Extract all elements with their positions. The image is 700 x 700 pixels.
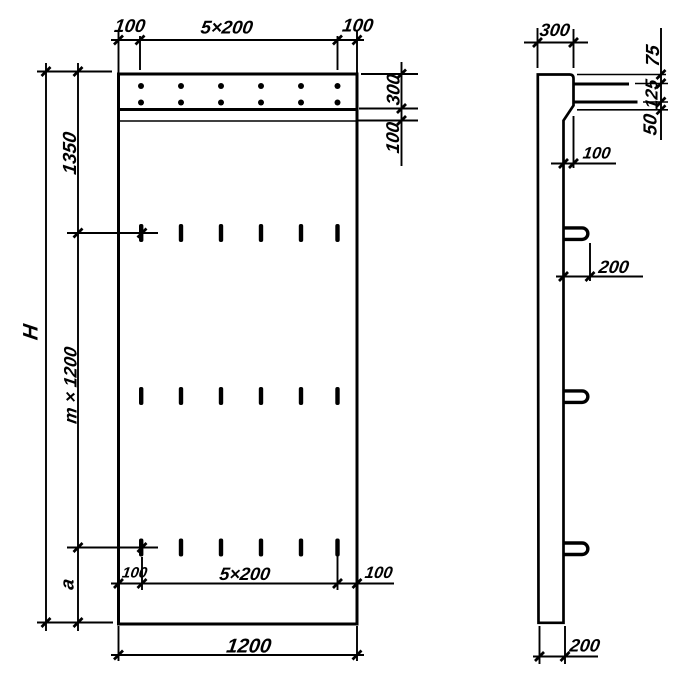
svg-text:5×200: 5×200 xyxy=(218,564,271,584)
svg-text:5×200: 5×200 xyxy=(199,17,255,38)
svg-text:100: 100 xyxy=(364,563,395,582)
svg-text:300: 300 xyxy=(383,72,404,106)
svg-text:125: 125 xyxy=(642,78,662,110)
svg-text:100: 100 xyxy=(121,565,149,582)
svg-text:100: 100 xyxy=(113,15,147,36)
svg-text:100: 100 xyxy=(382,120,403,154)
svg-text:m × 1200: m × 1200 xyxy=(61,345,81,424)
svg-text:H: H xyxy=(20,322,43,341)
svg-text:200: 200 xyxy=(596,257,630,277)
svg-text:50: 50 xyxy=(641,112,662,136)
svg-text:100: 100 xyxy=(582,144,613,163)
svg-text:300: 300 xyxy=(538,20,571,40)
svg-text:200: 200 xyxy=(567,636,601,656)
svg-text:75: 75 xyxy=(643,43,664,67)
svg-text:100: 100 xyxy=(341,15,375,36)
svg-text:1200: 1200 xyxy=(225,636,273,658)
svg-text:1350: 1350 xyxy=(60,130,81,176)
svg-text:a: a xyxy=(58,577,79,591)
